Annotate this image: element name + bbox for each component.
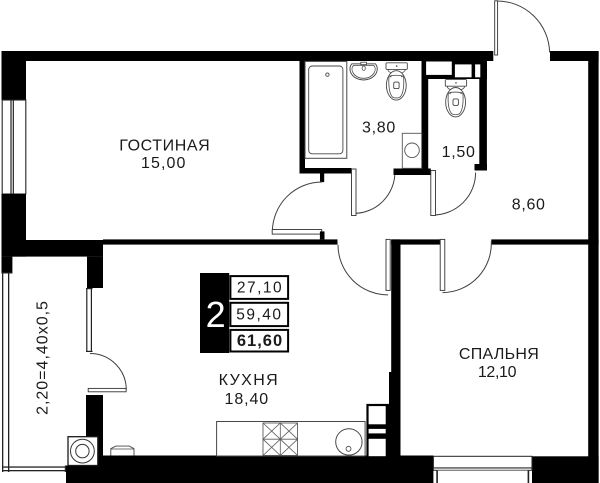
svg-text:12,10: 12,10 [478, 364, 517, 381]
svg-text:18,40: 18,40 [225, 391, 270, 408]
svg-text:КУХНЯ: КУХНЯ [219, 372, 279, 389]
svg-text:3,80: 3,80 [362, 119, 396, 136]
svg-text:59,40: 59,40 [236, 307, 282, 324]
svg-text:2: 2 [206, 294, 226, 335]
svg-text:ГОСТИНАЯ: ГОСТИНАЯ [119, 138, 210, 155]
svg-text:15,00: 15,00 [141, 155, 187, 172]
svg-text:61,60: 61,60 [237, 332, 283, 350]
svg-text:27,10: 27,10 [237, 280, 283, 297]
svg-text:1,50: 1,50 [442, 144, 476, 161]
svg-text:СПАЛЬНЯ: СПАЛЬНЯ [459, 346, 539, 363]
svg-text:2,20=4,40х0,5: 2,20=4,40х0,5 [35, 300, 52, 415]
svg-text:8,60: 8,60 [512, 197, 546, 214]
